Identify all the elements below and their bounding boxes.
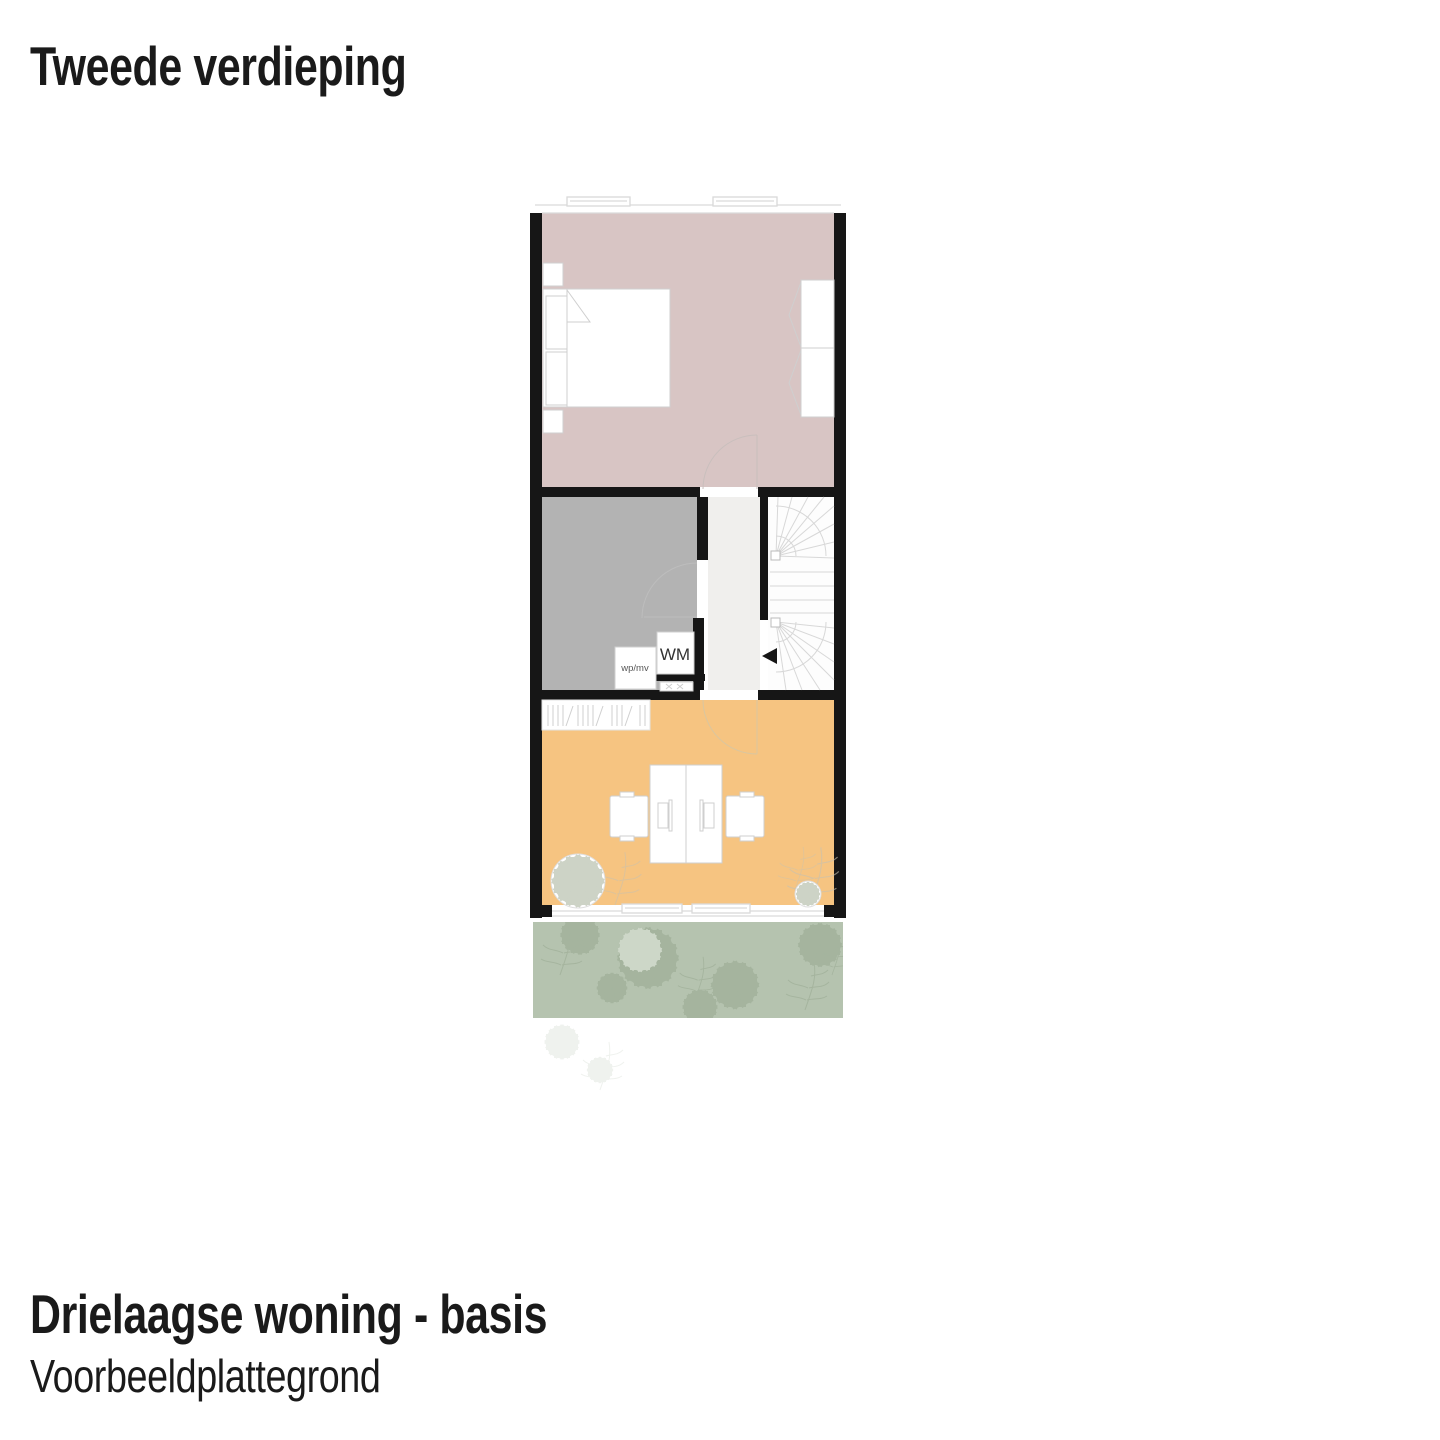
footer-title-text: Drielaagse woning - basis: [30, 1286, 547, 1344]
wall-bottom-left-corner: [530, 905, 552, 917]
wall-office-divider-right: [758, 690, 846, 700]
newel-post: [771, 551, 780, 560]
bed: [543, 289, 670, 407]
footer-subtitle-text: Voorbeeldplattegrond: [30, 1352, 380, 1400]
washing-machine-label: WM: [660, 645, 690, 664]
hallway-area: [708, 497, 760, 690]
wpmv-label: wp/mv: [620, 663, 649, 674]
wall-stairwell: [760, 497, 768, 620]
duct-shaft: [660, 682, 693, 691]
wall-bedroom-divider-right: [758, 487, 846, 497]
nightstand: [543, 410, 563, 433]
pillow: [546, 296, 567, 349]
top-window-band: [535, 197, 841, 213]
wall-bathroom-upper: [697, 497, 708, 560]
footer-title: Drielaagse woning - basis: [30, 1286, 693, 1344]
bottom-window-band: [552, 904, 824, 916]
wall-right: [834, 213, 846, 918]
wall-under-wm: [655, 674, 705, 681]
bookshelf: [542, 700, 650, 730]
floorplan-page: Tweede verdieping: [0, 0, 1440, 1440]
newel-post: [771, 618, 780, 627]
terrace-foliage-ghost: [546, 1026, 624, 1090]
desk-chair-right: [726, 792, 764, 841]
pillow: [546, 352, 567, 405]
desk-chair-left: [610, 792, 648, 841]
footer-subtitle: Voorbeeldplattegrond: [30, 1352, 457, 1400]
floorplan-drawing: WM wp/mv: [0, 0, 1440, 1440]
double-desk: [650, 765, 722, 863]
nightstand: [543, 263, 563, 286]
wall-bedroom-divider-left: [530, 487, 700, 497]
wall-left: [530, 213, 542, 918]
wall-bottom-right-corner: [824, 905, 846, 917]
